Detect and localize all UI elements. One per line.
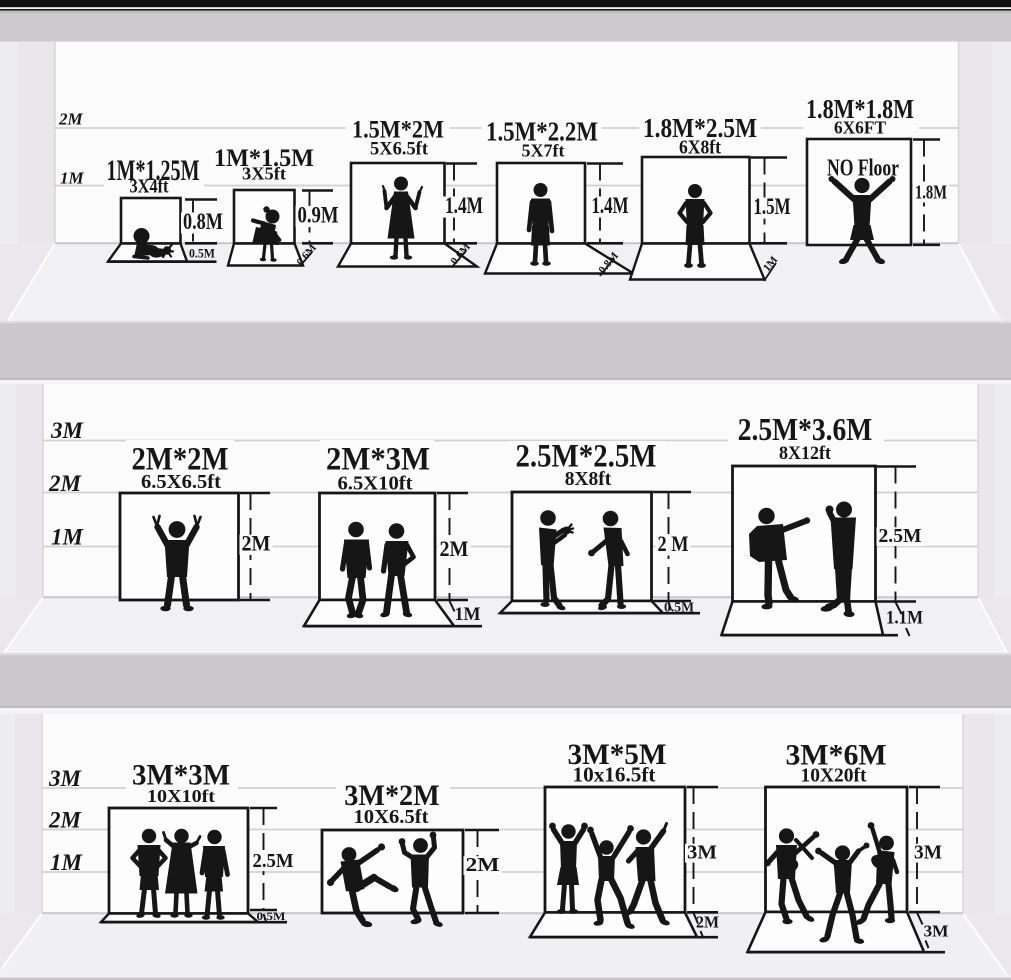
svg-text:0.5M: 0.5M [189,246,215,261]
svg-text:1M: 1M [60,169,85,188]
svg-text:3X4ft: 3X4ft [130,177,169,198]
svg-text:2M: 2M [466,854,500,876]
svg-text:2.5M: 2.5M [879,525,922,547]
svg-text:3M: 3M [50,418,85,443]
svg-text:10X6.5ft: 10X6.5ft [354,807,430,828]
svg-text:2M: 2M [696,913,719,932]
svg-text:2M: 2M [48,808,83,833]
svg-text:2M: 2M [48,471,83,496]
svg-text:10X10ft: 10X10ft [147,786,215,806]
svg-text:3M: 3M [48,766,83,791]
svg-text:6X6FT: 6X6FT [834,118,886,138]
svg-text:1M: 1M [50,850,84,875]
svg-text:2.5M*3.6M: 2.5M*3.6M [738,411,873,447]
svg-text:0.8M: 0.8M [183,209,223,234]
svg-text:2M: 2M [242,531,271,556]
svg-text:1M: 1M [455,604,481,625]
svg-text:8X8ft: 8X8ft [565,468,612,490]
svg-text:6X8ft: 6X8ft [679,137,721,159]
svg-text:2M: 2M [58,110,84,129]
svg-text:3M: 3M [924,922,949,941]
svg-text:3M: 3M [687,842,717,864]
svg-text:3M: 3M [914,842,942,864]
svg-text:0.9M: 0.9M [298,203,339,228]
svg-text:10x16.5ft: 10x16.5ft [573,763,656,787]
svg-text:6.5X10ft: 6.5X10ft [338,473,413,495]
svg-text:1M: 1M [51,525,85,550]
svg-text:1.4M: 1.4M [445,193,483,218]
svg-text:5X6.5ft: 5X6.5ft [370,139,429,160]
svg-text:2 M: 2 M [658,531,689,556]
svg-text:1.8M: 1.8M [915,182,947,204]
svg-text:6.5X6.5ft: 6.5X6.5ft [141,471,221,493]
svg-text:2.5M: 2.5M [253,850,294,872]
svg-text:8X12ft: 8X12ft [779,444,832,464]
svg-text:0.5M: 0.5M [257,909,286,923]
svg-text:5X7ft: 5X7ft [522,141,565,161]
svg-text:1.5M: 1.5M [754,194,791,219]
svg-text:1.4M: 1.4M [592,193,629,218]
svg-text:NO Floor: NO Floor [827,156,899,182]
svg-text:3X5ft: 3X5ft [242,164,286,184]
svg-text:1.1M: 1.1M [886,608,923,629]
svg-text:2M: 2M [440,536,469,561]
svg-text:10X20ft: 10X20ft [801,766,867,787]
